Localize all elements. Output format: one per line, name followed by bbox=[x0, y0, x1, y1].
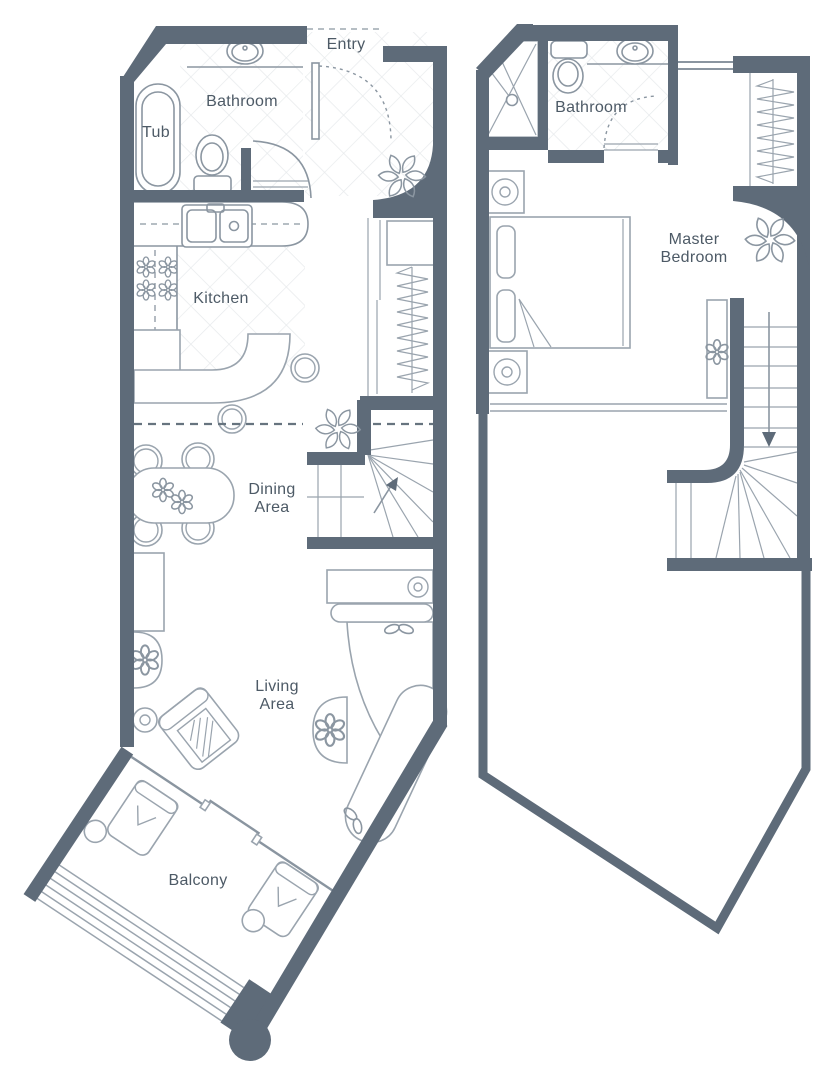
floor-plan-page: Entry Bathroom Tub Kitchen Dining Area L… bbox=[0, 0, 826, 1080]
lounge-chair bbox=[105, 778, 180, 858]
nightstand-with-lamp bbox=[487, 171, 524, 213]
loft-railing bbox=[490, 404, 727, 411]
stove-burners-icon bbox=[136, 257, 178, 300]
column bbox=[229, 1019, 271, 1061]
hanging-clothes-icon bbox=[757, 80, 794, 183]
closet-shelf bbox=[387, 221, 437, 265]
base-cabinet bbox=[133, 330, 180, 376]
tub-label: Tub bbox=[142, 124, 170, 141]
dining-label-line2: Area bbox=[255, 499, 290, 516]
balcony-door-leaf bbox=[210, 800, 260, 833]
pillow bbox=[497, 290, 515, 342]
fan-icon bbox=[316, 409, 361, 449]
dining-label-line1: Dining bbox=[248, 481, 295, 498]
toilet-icon bbox=[194, 135, 231, 193]
bathroom-label-upper: Bathroom bbox=[555, 99, 627, 116]
master-label-line2: Bedroom bbox=[660, 249, 727, 266]
lower-floor-plan: Entry Bathroom Tub Kitchen Dining Area L… bbox=[24, 26, 455, 1061]
open-below-walls bbox=[483, 414, 806, 928]
closet-upper bbox=[750, 73, 794, 186]
sink-icon bbox=[617, 38, 653, 64]
window bbox=[678, 62, 733, 69]
kitchen-label: Kitchen bbox=[193, 290, 248, 307]
down-arrow-icon bbox=[762, 432, 776, 447]
dining-table bbox=[127, 468, 234, 523]
door-jamb bbox=[200, 800, 210, 811]
entry-label: Entry bbox=[327, 36, 366, 53]
half-round-table bbox=[313, 697, 347, 763]
round-side-table bbox=[133, 708, 157, 732]
pillow bbox=[497, 226, 515, 278]
upper-floor-plan: Bathroom Master Bedroom bbox=[476, 24, 812, 928]
dining-area bbox=[127, 443, 234, 546]
stair-direction-line bbox=[374, 486, 391, 513]
balcony-label: Balcony bbox=[168, 872, 227, 889]
balcony bbox=[24, 743, 347, 1042]
master-label-line1: Master bbox=[669, 231, 720, 248]
console-table bbox=[705, 300, 729, 398]
bathroom-label-lower: Bathroom bbox=[206, 93, 278, 110]
upper-walls bbox=[476, 24, 812, 928]
shower-drain-icon bbox=[507, 95, 518, 106]
bar-stool bbox=[291, 354, 319, 382]
kitchen-sink-icon bbox=[182, 204, 252, 247]
bar-stool bbox=[218, 405, 246, 433]
fan-icon bbox=[745, 218, 795, 262]
door-leaf bbox=[312, 63, 319, 139]
master-bed bbox=[490, 217, 630, 348]
living-label-line2: Area bbox=[260, 696, 295, 713]
side-cabinet bbox=[133, 553, 164, 631]
closet-lower bbox=[368, 218, 437, 396]
living-label-line1: Living bbox=[255, 678, 299, 695]
floor-plan-image: Entry Bathroom Tub Kitchen Dining Area L… bbox=[0, 0, 826, 1080]
tv-console bbox=[327, 570, 433, 603]
armchair bbox=[156, 685, 242, 773]
nightstand-with-lamp bbox=[487, 351, 527, 393]
